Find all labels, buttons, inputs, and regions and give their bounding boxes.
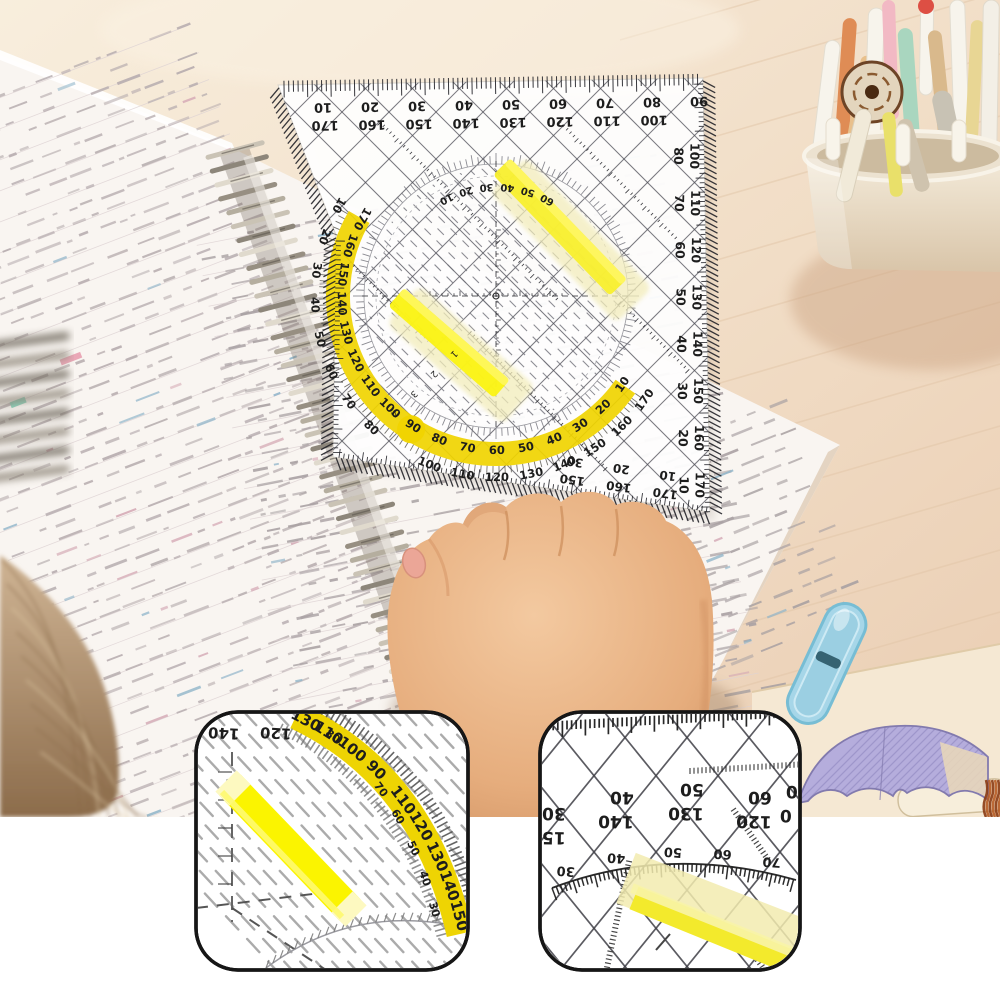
ruler-digit: 100 [640,112,667,127]
ruler-digit: 140 [452,115,479,130]
ruler-digit: 140 [208,723,240,743]
ruler-digit: 50 [663,843,682,859]
ruler-digit: 120 [260,723,292,743]
ruler-digit: 50 [680,779,704,799]
ruler-digit: 10 [659,467,677,483]
ruler-digit: 20 [612,461,630,477]
ruler-digit: 80 [671,147,686,165]
ruler-digit: 150 [691,378,706,405]
ruler-digit: 30 [309,262,325,280]
ruler-digit: 70 [672,194,687,212]
ruler-digit: 60 [673,241,688,259]
ruler-digit: 120 [485,470,509,484]
ruler-digit: 140 [335,291,350,316]
ruler-digit: 40 [500,181,515,193]
ruler-digit: 10 [314,99,332,114]
ruler-digit: 140 [598,811,634,832]
ruler-digit: 30 [556,862,575,878]
ruler-digit: 30 [542,803,566,823]
white-footer [0,817,1000,1000]
ruler-digit: 90 [690,93,708,108]
ruler-digit: 60 [549,95,567,110]
ruler-digit: 40 [455,97,473,112]
pencil-cup [804,0,1000,272]
ruler-digit: 50 [502,96,520,111]
ruler-digit: 30 [675,382,690,400]
ruler-digit: 120 [689,237,704,264]
ruler-digit: 130 [668,803,704,824]
ruler-digit: 60 [489,443,505,457]
ruler-digit: 130 [689,284,704,311]
ruler-digit: 30 [479,181,494,193]
ruler-digit: 20 [361,98,379,113]
ruler-digit: 150 [405,115,432,130]
ruler-digit: 100 [687,143,702,170]
ruler-digit: 50 [673,288,688,306]
ruler-digit: 60 [713,845,732,861]
ruler-digit: 40 [607,849,626,865]
ruler-digit: 110 [593,112,620,127]
ruler-digit: 120 [736,811,772,832]
ruler-digit: 120 [546,113,573,128]
ruler-digit: 40 [674,335,689,353]
ruler-digit: 130 [499,114,526,129]
scene: 1020304050607080901701601501401301201101… [0,0,1000,1000]
ruler-digit: 30 [408,98,426,113]
ruler-digit: 70 [596,94,614,109]
ruler-digit: 140 [690,331,705,358]
ruler-digit: 70 [458,439,476,456]
ruler-digit: 60 [748,787,772,807]
ruler-digit: 70 [762,853,781,869]
ruler-digit: 40 [308,297,323,314]
ruler-digit: 0 [780,805,792,825]
ruler-digit: 160 [358,116,385,131]
product-photo: 1020304050607080901701601501401301201101… [0,0,1000,1000]
ruler-digit: 170 [311,117,338,132]
ruler-digit: 80 [643,94,661,109]
ruler-digit: 20 [676,429,691,447]
ruler-digit: 110 [688,190,703,217]
ruler-digit: 160 [692,425,707,452]
ruler-digit: 170 [692,472,707,499]
ruler-digit: 0 [786,781,798,801]
ruler-digit: 40 [610,787,634,807]
